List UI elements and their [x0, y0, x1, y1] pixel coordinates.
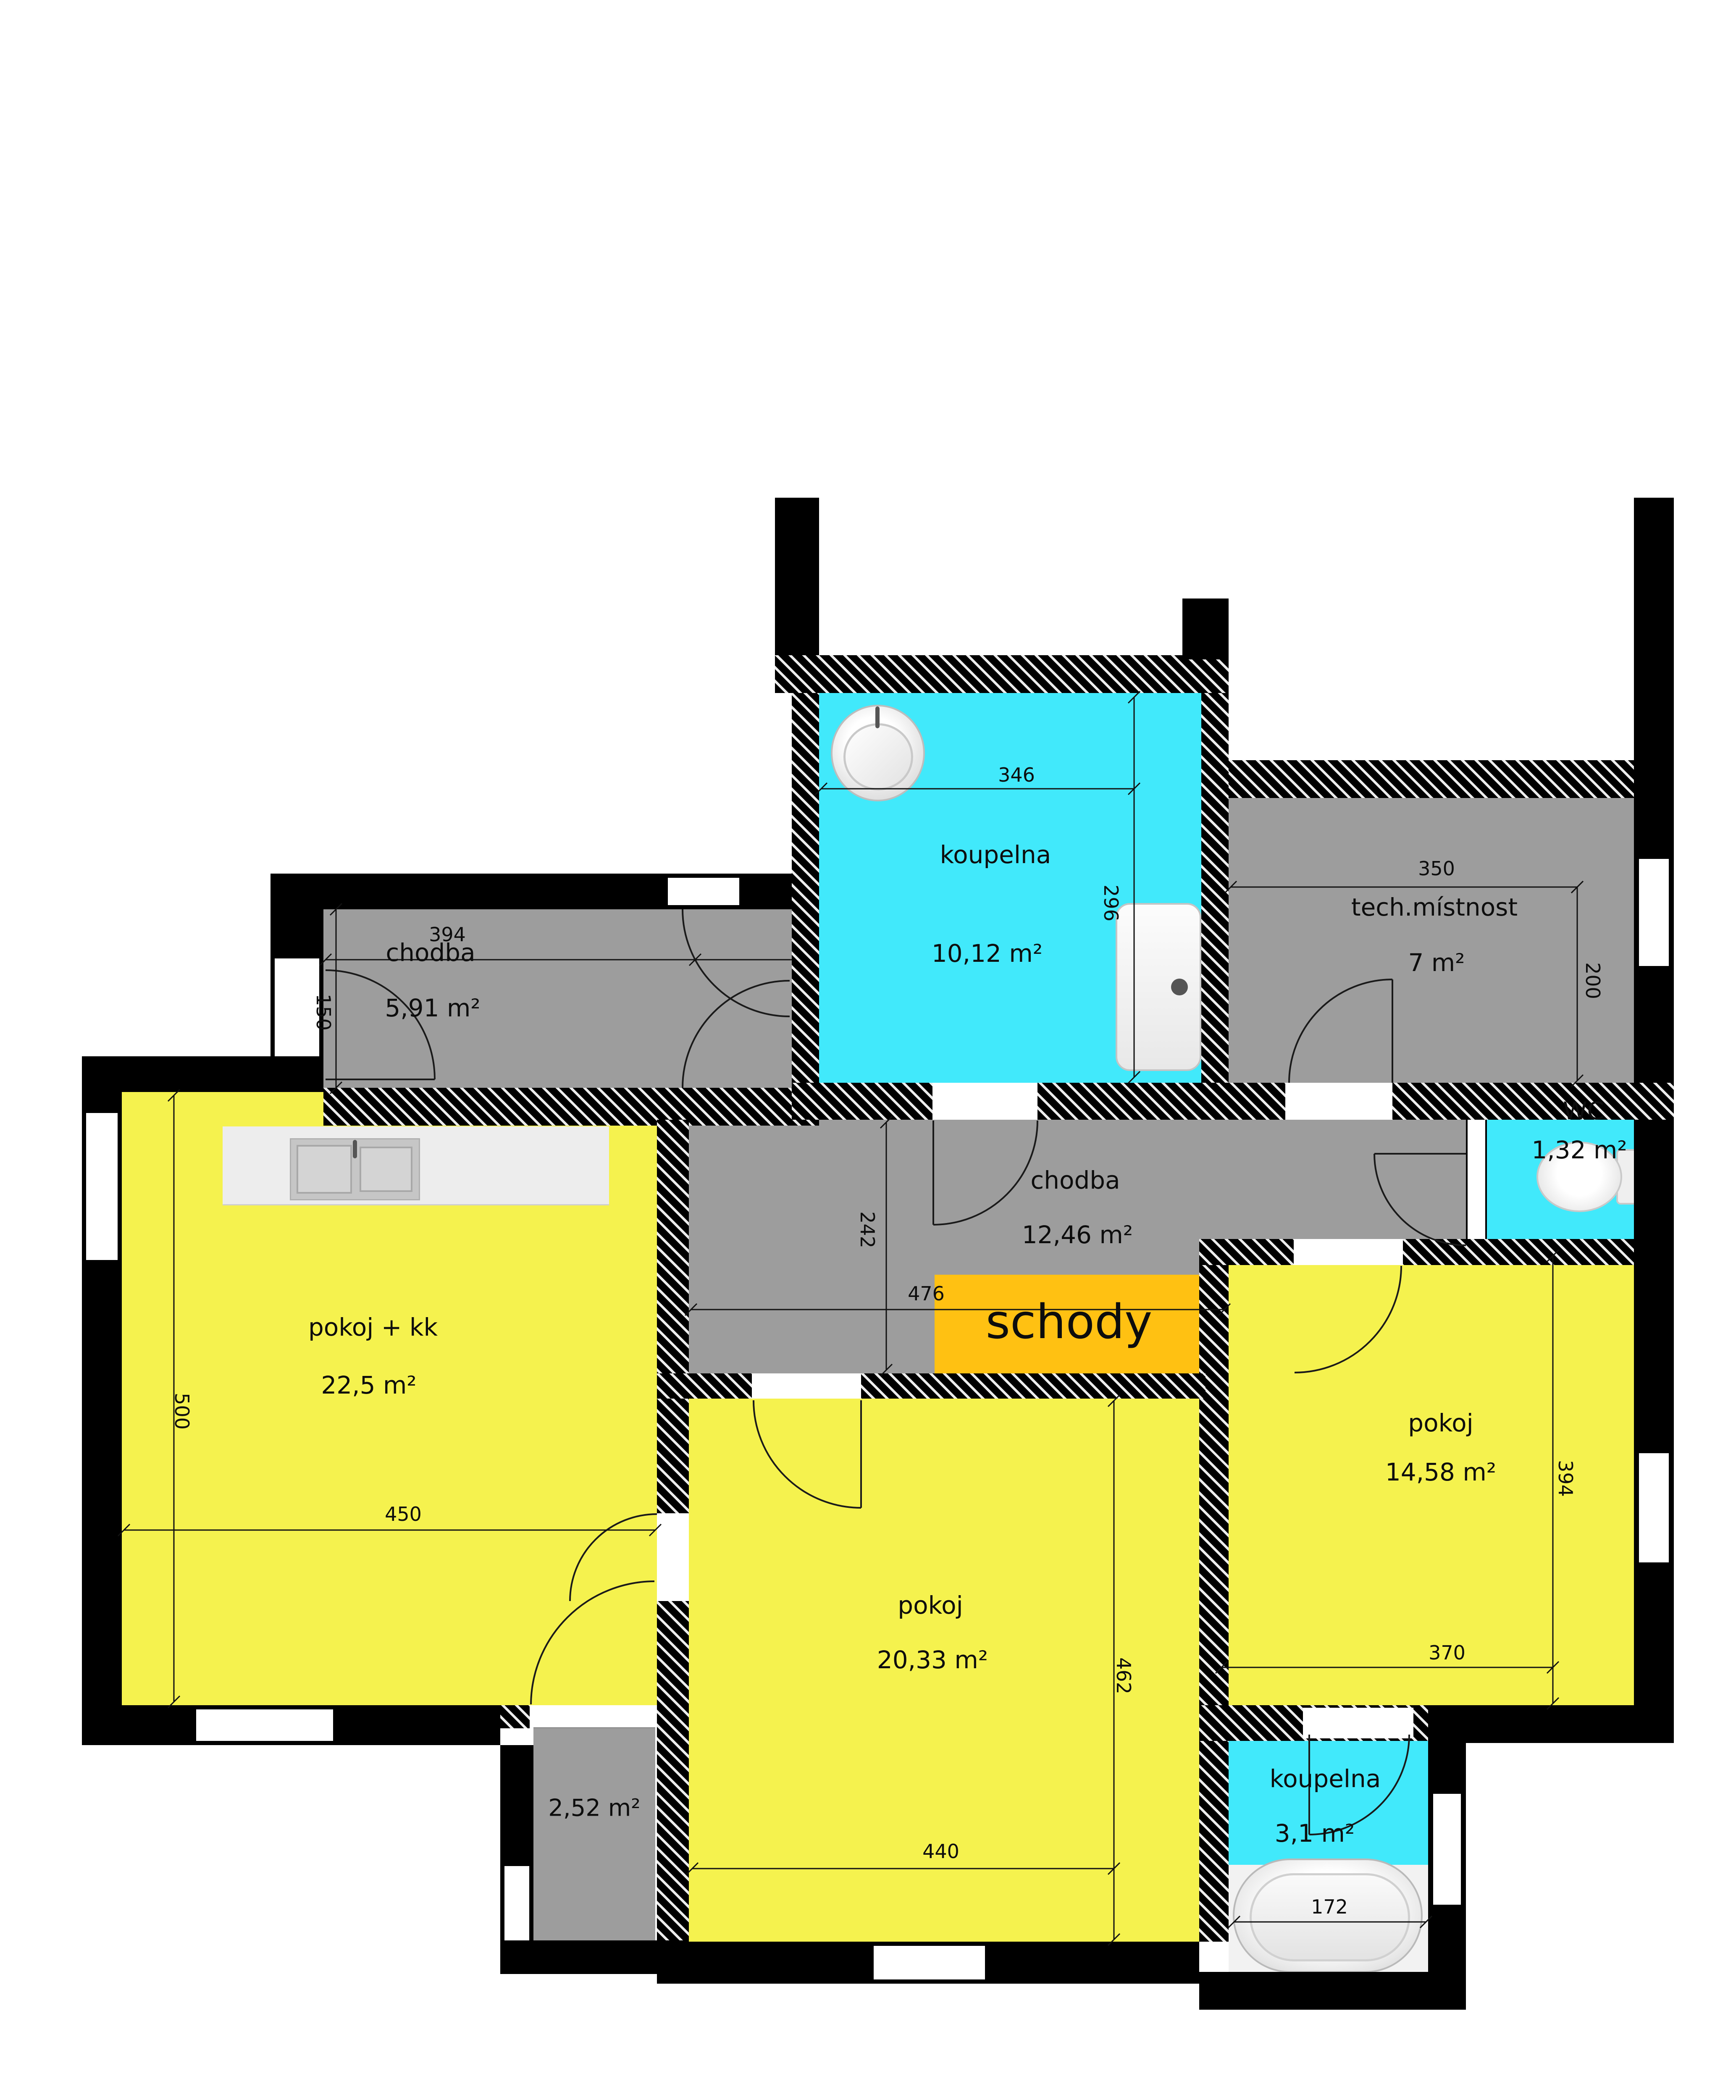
label-tech: tech.místnost: [1351, 893, 1518, 921]
door-arc-komora: [531, 1581, 654, 1704]
label-chodba-main: chodba: [1030, 1166, 1120, 1194]
dim-line-440: [686, 1863, 1120, 1874]
door-arc-tech: [1289, 979, 1392, 1083]
dim-394-right: 394: [1554, 1460, 1577, 1497]
dim-450: 450: [385, 1503, 422, 1525]
label-chodba-top: chodba: [386, 938, 475, 967]
area-tech: 7 m²: [1408, 948, 1465, 977]
area-pokoj-main: 20,33 m²: [877, 1646, 988, 1674]
area-chodba-top: 5,91 m²: [385, 994, 480, 1022]
dim-296: 296: [1100, 885, 1122, 921]
door-arc-chodba-right-2: [683, 981, 790, 1088]
area-chodba-main: 12,46 m²: [1022, 1221, 1133, 1249]
door-arc-pokoj-right: [1295, 1266, 1401, 1373]
dim-350: 350: [1418, 857, 1455, 880]
door-arc-chodba-left: [326, 970, 435, 1079]
area-wc: 1,32 m²: [1531, 1136, 1627, 1164]
dim-172: 172: [1311, 1895, 1348, 1918]
dim-500: 500: [171, 1393, 193, 1430]
dim-150: 150: [312, 994, 335, 1031]
dim-line-296: [1128, 691, 1140, 1083]
dim-242: 242: [856, 1211, 879, 1248]
dim-line-350: [1225, 881, 1583, 893]
area-pokoj-kk: 22,5 m²: [321, 1371, 416, 1399]
label-pokoj-main: pokoj: [898, 1591, 963, 1620]
label-wc: WC: [1563, 1097, 1604, 1125]
area-koupelna-top: 10,12 m²: [932, 939, 1043, 968]
dim-440: 440: [922, 1840, 959, 1863]
area-pokoj-right: 14,58 m²: [1385, 1458, 1496, 1486]
dim-462: 462: [1112, 1657, 1135, 1694]
label-pokoj-right: pokoj: [1408, 1409, 1473, 1437]
label-pokoj-kk: pokoj + kk: [308, 1313, 438, 1341]
door-arc-koupelna-top: [933, 1121, 1037, 1225]
dim-line-242: [880, 1116, 892, 1376]
label-koupelna-small: koupelna: [1270, 1764, 1381, 1793]
door-arc-chodba-right-1: [683, 909, 790, 1016]
plan-linework: [0, 0, 1736, 2100]
dim-200: 200: [1581, 962, 1604, 999]
dim-370: 370: [1429, 1641, 1465, 1664]
area-koupelna-small: 3,1 m²: [1275, 1819, 1355, 1848]
dim-line-370: [1216, 1662, 1559, 1673]
label-schody: schody: [986, 1295, 1153, 1349]
dim-line-346: [815, 783, 1140, 795]
dim-346: 346: [998, 764, 1035, 786]
door-arc-wc: [1374, 1154, 1466, 1245]
dim-line-450: [118, 1524, 661, 1536]
dim-476: 476: [908, 1282, 945, 1305]
label-koupelna-top: koupelna: [940, 840, 1051, 869]
area-komora: 2,52 m²: [548, 1795, 641, 1822]
door-arc-pokoj-main: [754, 1400, 861, 1508]
floor-plan: 394 chodba 5,91 m² 150 346 koupelna 10,1…: [0, 0, 1736, 2100]
